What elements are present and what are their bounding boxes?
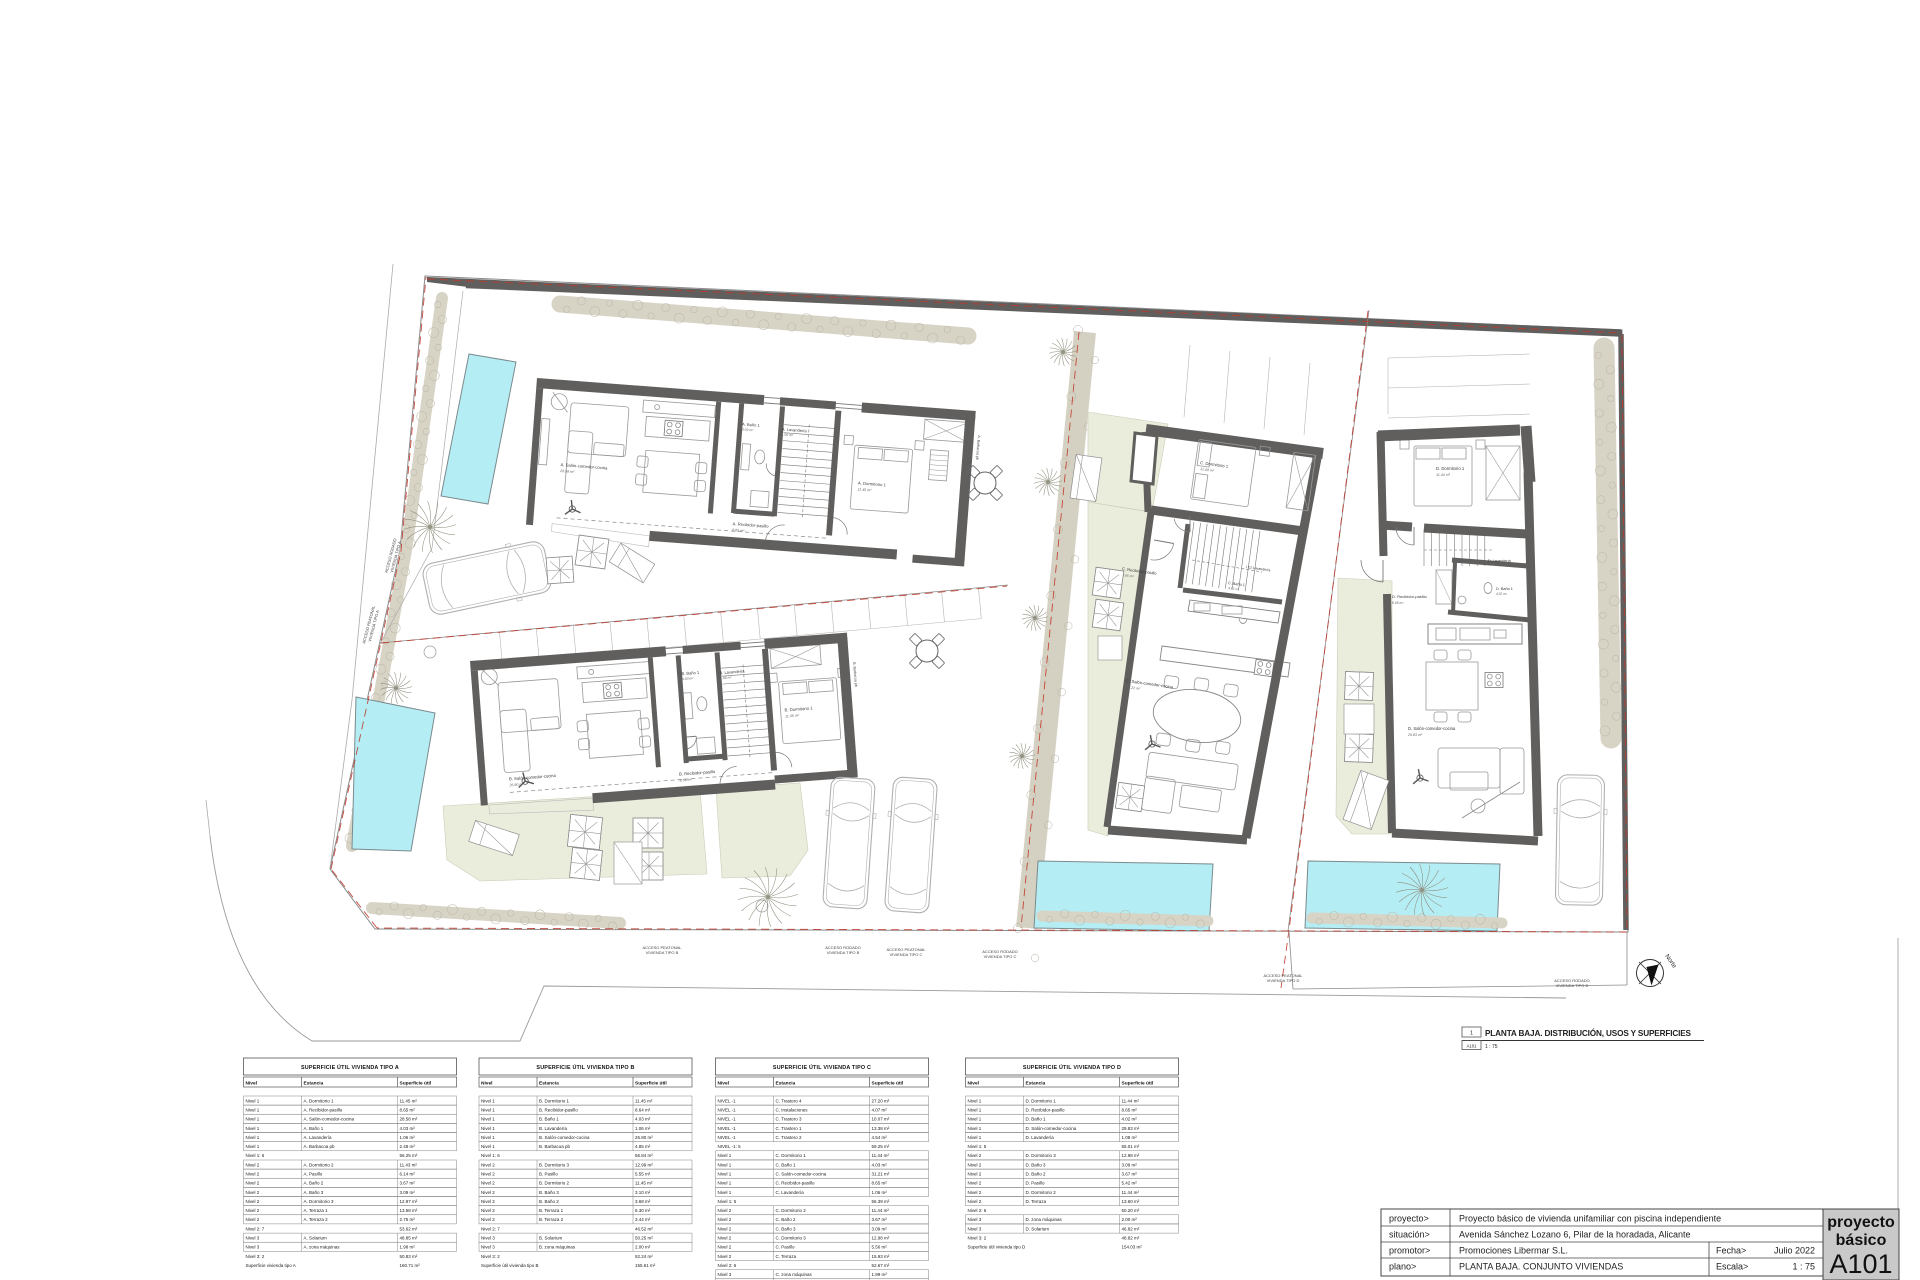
svg-text:C. zona máquinas: C. zona máquinas — [776, 1272, 813, 1277]
svg-text:Nivel 1: Nivel 1 — [718, 1181, 732, 1186]
svg-text:48.82 m²: 48.82 m² — [1122, 1236, 1140, 1241]
svg-text:8.65 m²: 8.65 m² — [400, 1108, 416, 1113]
svg-text:12.99 m²: 12.99 m² — [635, 1162, 653, 1167]
svg-text:2.75 m²: 2.75 m² — [400, 1217, 416, 1222]
svg-text:13.58 m²: 13.58 m² — [400, 1208, 418, 1213]
svg-text:Nivel 3: Nivel 3 — [968, 1226, 982, 1231]
svg-text:C. Baño 3: C. Baño 3 — [776, 1226, 797, 1231]
svg-text:56.84 m²: 56.84 m² — [635, 1153, 653, 1158]
svg-text:Nivel 2: Nivel 2 — [246, 1217, 260, 1222]
svg-text:Nivel: Nivel — [246, 1080, 257, 1086]
svg-text:B. Barbacoa pb: B. Barbacoa pb — [539, 1144, 571, 1149]
svg-text:B. Pasillo: B. Pasillo — [539, 1172, 558, 1177]
svg-text:56.39 m²: 56.39 m² — [872, 1199, 890, 1204]
svg-text:Nivel 2: Nivel 2 — [246, 1190, 260, 1195]
svg-text:Nivel 2: 7: Nivel 2: 7 — [481, 1226, 500, 1231]
svg-text:31.21 m²: 31.21 m² — [872, 1172, 890, 1177]
svg-text:C. Dormitorio 1: C. Dormitorio 1 — [776, 1153, 807, 1158]
svg-text:Nivel 2: Nivel 2 — [718, 1254, 732, 1259]
svg-text:VIVIENDA TIPO D: VIVIENDA TIPO D — [1267, 978, 1300, 983]
svg-text:11.45 m²: 11.45 m² — [400, 1098, 418, 1103]
svg-text:Nivel 2: Nivel 2 — [246, 1162, 260, 1167]
svg-text:1.08 m²: 1.08 m² — [1122, 1135, 1138, 1140]
svg-text:5.42 m²: 5.42 m² — [1122, 1181, 1138, 1186]
svg-text:Nivel 3: 2: Nivel 3: 2 — [968, 1236, 987, 1241]
svg-text:Nivel 1: Nivel 1 — [246, 1117, 260, 1122]
svg-text:4.03 m²: 4.03 m² — [635, 1117, 651, 1122]
svg-text:B. Terraza 2: B. Terraza 2 — [539, 1217, 564, 1222]
svg-text:1 : 75: 1 : 75 — [1485, 1044, 1498, 1050]
svg-text:52.67 m²: 52.67 m² — [872, 1263, 890, 1268]
svg-text:Nivel 3: Nivel 3 — [481, 1236, 495, 1241]
svg-text:A. Recibidor-pasillo: A. Recibidor-pasillo — [304, 1108, 343, 1113]
svg-text:A. Baño 1: A. Baño 1 — [304, 1126, 324, 1131]
svg-text:Nivel 1: Nivel 1 — [481, 1098, 495, 1103]
svg-text:Nivel 2: Nivel 2 — [246, 1181, 260, 1186]
svg-text:B. Baño 3: B. Baño 3 — [539, 1190, 559, 1195]
svg-text:1 : 75: 1 : 75 — [1792, 1262, 1815, 1272]
svg-text:Nivel 2: Nivel 2 — [968, 1162, 982, 1167]
svg-text:B. Dormitorio 1: B. Dormitorio 1 — [539, 1098, 570, 1103]
svg-text:Superficie vivienda tipo A: Superficie vivienda tipo A — [246, 1263, 296, 1268]
svg-text:154.03 m²: 154.03 m² — [1122, 1245, 1143, 1250]
svg-text:1: 1 — [1470, 1031, 1473, 1037]
svg-text:D. Dormitorio 2: D. Dormitorio 2 — [1026, 1190, 1057, 1195]
svg-text:Nivel 2: Nivel 2 — [246, 1199, 260, 1204]
svg-text:Nivel 1: Nivel 1 — [246, 1126, 260, 1131]
svg-text:A. Baño 3: A. Baño 3 — [304, 1190, 324, 1195]
svg-text:D. Terraza: D. Terraza — [1026, 1199, 1047, 1204]
svg-text:Nivel 1: Nivel 1 — [968, 1135, 982, 1140]
svg-text:Superficie útil: Superficie útil — [872, 1080, 904, 1086]
svg-text:12.98 m²: 12.98 m² — [872, 1236, 890, 1241]
svg-text:11.44 m²: 11.44 m² — [1122, 1190, 1140, 1195]
svg-text:11.44 m²: 11.44 m² — [872, 1208, 890, 1213]
svg-text:Nivel 2: 7: Nivel 2: 7 — [246, 1226, 265, 1231]
svg-text:3.44 m²: 3.44 m² — [635, 1217, 651, 1222]
svg-text:Nivel 2: Nivel 2 — [968, 1199, 982, 1204]
svg-text:10.07 m²: 10.07 m² — [872, 1117, 890, 1122]
svg-text:C. Salón-comedor-cocina: C. Salón-comedor-cocina — [776, 1172, 827, 1177]
svg-text:Nivel 1: Nivel 1 — [246, 1135, 260, 1140]
svg-text:Nivel 2: Nivel 2 — [718, 1236, 732, 1241]
svg-text:VIVIENDA TIPO B: VIVIENDA TIPO B — [646, 950, 679, 955]
svg-text:Nivel 1: 5: Nivel 1: 5 — [968, 1144, 987, 1149]
svg-text:Nivel 3: 2: Nivel 3: 2 — [246, 1254, 265, 1259]
svg-text:Nivel 2: Nivel 2 — [718, 1217, 732, 1222]
svg-text:1.98 m²: 1.98 m² — [400, 1245, 416, 1250]
svg-text:C. Instalaciones: C. Instalaciones — [776, 1108, 809, 1113]
svg-text:NIVEL -1: NIVEL -1 — [718, 1108, 737, 1113]
svg-text:Estancia: Estancia — [776, 1080, 796, 1086]
svg-text:Superficie útil: Superficie útil — [1122, 1080, 1154, 1086]
svg-text:Nivel: Nivel — [718, 1080, 729, 1086]
svg-text:Nivel 1: Nivel 1 — [718, 1190, 732, 1195]
svg-text:Promociones Libermar S.L.: Promociones Libermar S.L. — [1459, 1246, 1568, 1256]
svg-text:B. Dormitorio 3: B. Dormitorio 3 — [539, 1162, 570, 1167]
svg-text:Nivel 3: Nivel 3 — [246, 1245, 260, 1250]
svg-text:D. Dormitorio 1: D. Dormitorio 1 — [1436, 466, 1465, 471]
svg-text:13.60 m²: 13.60 m² — [1122, 1199, 1140, 1204]
svg-text:Nivel 1: Nivel 1 — [968, 1098, 982, 1103]
svg-text:15.93 m²: 15.93 m² — [872, 1254, 890, 1259]
svg-text:A. Lavandería: A. Lavandería — [304, 1135, 333, 1140]
svg-text:3.67 m²: 3.67 m² — [872, 1217, 888, 1222]
svg-text:53.62 m²: 53.62 m² — [400, 1226, 418, 1231]
svg-text:Escala>: Escala> — [1716, 1262, 1748, 1272]
svg-text:5.56 m²: 5.56 m² — [872, 1245, 888, 1250]
svg-text:proyecto: proyecto — [1827, 1214, 1895, 1231]
svg-text:46.52 m²: 46.52 m² — [635, 1226, 653, 1231]
svg-text:Julio 2022: Julio 2022 — [1774, 1246, 1815, 1256]
svg-text:Nivel 1: Nivel 1 — [718, 1172, 732, 1177]
svg-text:VIVIENDA TIPO C: VIVIENDA TIPO C — [984, 954, 1017, 959]
svg-text:Avenida Sánchez Lozano 6, Pila: Avenida Sánchez Lozano 6, Pilar de la ho… — [1459, 1230, 1691, 1240]
svg-text:11.44 m²: 11.44 m² — [872, 1153, 890, 1158]
svg-text:Nivel 2: 6: Nivel 2: 6 — [718, 1263, 737, 1268]
svg-text:Nivel 2: Nivel 2 — [481, 1217, 495, 1222]
svg-text:promotor>: promotor> — [1389, 1246, 1430, 1256]
svg-text:NIVEL -1: NIVEL -1 — [718, 1135, 737, 1140]
svg-text:12.97 m²: 12.97 m² — [400, 1199, 418, 1204]
svg-text:59.25 m²: 59.25 m² — [872, 1144, 890, 1149]
svg-text:Nivel 1: Nivel 1 — [968, 1108, 982, 1113]
svg-text:A. Pasillo: A. Pasillo — [304, 1172, 323, 1177]
svg-text:11.45 m²: 11.45 m² — [635, 1181, 653, 1186]
svg-text:50.25 m²: 50.25 m² — [635, 1236, 653, 1241]
svg-text:Nivel 1: Nivel 1 — [968, 1117, 982, 1122]
svg-text:Nivel: Nivel — [968, 1080, 979, 1086]
svg-text:6.14 m²: 6.14 m² — [400, 1172, 416, 1177]
svg-text:básico: básico — [1836, 1232, 1887, 1249]
svg-text:Nivel 3: 2: Nivel 3: 2 — [481, 1254, 500, 1259]
svg-text:28.58 m²: 28.58 m² — [400, 1117, 418, 1122]
svg-text:4.02 m²: 4.02 m² — [1122, 1117, 1138, 1122]
svg-text:VIVIENDA TIPO B: VIVIENDA TIPO B — [827, 950, 860, 955]
svg-text:A101: A101 — [1467, 1044, 1477, 1049]
svg-text:D. Baño 1: D. Baño 1 — [1026, 1117, 1047, 1122]
svg-text:Nivel 2: Nivel 2 — [481, 1190, 495, 1195]
svg-text:Nivel 2: 6: Nivel 2: 6 — [968, 1208, 987, 1213]
svg-text:6.30 m²: 6.30 m² — [635, 1208, 651, 1213]
svg-text:A. Dormitorio 2: A. Dormitorio 2 — [304, 1162, 335, 1167]
svg-text:8.64 m²: 8.64 m² — [635, 1108, 651, 1113]
svg-text:4.02 m²: 4.02 m² — [1496, 592, 1508, 596]
svg-text:Estancia: Estancia — [539, 1080, 559, 1086]
svg-text:A. Baño 2: A. Baño 2 — [304, 1181, 324, 1186]
svg-text:B. Salón-comedor-cocina: B. Salón-comedor-cocina — [539, 1135, 590, 1140]
svg-text:4.85 m²: 4.85 m² — [635, 1144, 651, 1149]
svg-text:3.10 m²: 3.10 m² — [635, 1190, 651, 1195]
svg-text:SUPERFICIE ÚTIL VIVIENDA TIPO: SUPERFICIE ÚTIL VIVIENDA TIPO D — [1023, 1064, 1121, 1071]
svg-text:Nivel 1: Nivel 1 — [481, 1135, 495, 1140]
svg-text:2.48 m²: 2.48 m² — [400, 1144, 416, 1149]
svg-text:11.44 m²: 11.44 m² — [1436, 473, 1451, 477]
svg-text:Nivel 2: Nivel 2 — [481, 1162, 495, 1167]
svg-text:Nivel 1: Nivel 1 — [246, 1108, 260, 1113]
svg-text:11.44 m²: 11.44 m² — [1122, 1098, 1140, 1103]
svg-text:Nivel 2: Nivel 2 — [718, 1245, 732, 1250]
svg-text:C. Trastero 4: C. Trastero 4 — [776, 1098, 803, 1103]
svg-text:3.09 m²: 3.09 m² — [872, 1226, 888, 1231]
svg-text:Nivel 1: 6: Nivel 1: 6 — [481, 1153, 500, 1158]
svg-text:3.67 m²: 3.67 m² — [400, 1181, 416, 1186]
svg-text:C. Dormitorio 3: C. Dormitorio 3 — [776, 1236, 807, 1241]
svg-text:Nivel 2: Nivel 2 — [246, 1208, 260, 1213]
svg-text:C. Lavandería: C. Lavandería — [776, 1190, 805, 1195]
svg-text:Nivel 1: Nivel 1 — [718, 1162, 732, 1167]
svg-text:situación>: situación> — [1389, 1230, 1430, 1240]
svg-text:Nivel 2: Nivel 2 — [481, 1199, 495, 1204]
svg-text:B. Baño 2: B. Baño 2 — [539, 1199, 559, 1204]
svg-text:C. Dormitorio 2: C. Dormitorio 2 — [776, 1208, 807, 1213]
svg-text:8.65 m²: 8.65 m² — [1122, 1108, 1138, 1113]
svg-text:Nivel 2: Nivel 2 — [481, 1208, 495, 1213]
svg-text:8.65 m²: 8.65 m² — [1392, 601, 1404, 605]
svg-text:Nivel 2: Nivel 2 — [968, 1181, 982, 1186]
svg-text:A. zona máquinas: A. zona máquinas — [304, 1245, 341, 1250]
svg-text:C. Trastero 3: C. Trastero 3 — [776, 1117, 803, 1122]
svg-text:A. Dormitorio 3: A. Dormitorio 3 — [304, 1199, 335, 1204]
svg-text:2.00 m²: 2.00 m² — [635, 1245, 651, 1250]
svg-text:48.85 m²: 48.85 m² — [400, 1236, 418, 1241]
svg-text:155.61 m²: 155.61 m² — [635, 1263, 656, 1268]
svg-text:A. Barbacoa pb: A. Barbacoa pb — [304, 1144, 336, 1149]
svg-text:C. Pasillo: C. Pasillo — [776, 1245, 796, 1250]
svg-text:Nivel 1: Nivel 1 — [246, 1098, 260, 1103]
svg-text:NIVEL -1: NIVEL -1 — [718, 1098, 737, 1103]
svg-text:D. Dormitorio 3: D. Dormitorio 3 — [1026, 1153, 1057, 1158]
svg-text:8.65 m²: 8.65 m² — [872, 1181, 888, 1186]
svg-text:D. Recibidor-pasillo: D. Recibidor-pasillo — [1392, 594, 1427, 599]
svg-text:B. Baño 1: B. Baño 1 — [539, 1117, 559, 1122]
svg-text:46.82 m²: 46.82 m² — [1122, 1226, 1140, 1231]
svg-text:C. Baño 1: C. Baño 1 — [776, 1162, 797, 1167]
svg-text:4.03 m²: 4.03 m² — [872, 1162, 888, 1167]
svg-text:C. Baño 2: C. Baño 2 — [776, 1217, 797, 1222]
svg-text:C. Recibidor-pasillo: C. Recibidor-pasillo — [776, 1181, 816, 1186]
svg-text:D. Dormitorio 1: D. Dormitorio 1 — [1026, 1098, 1057, 1103]
svg-text:VIVIENDA TIPO C: VIVIENDA TIPO C — [890, 952, 923, 957]
svg-text:26.80 m²: 26.80 m² — [635, 1135, 653, 1140]
svg-text:50.20 m²: 50.20 m² — [1122, 1208, 1140, 1213]
svg-text:3.09 m²: 3.09 m² — [1122, 1162, 1138, 1167]
svg-text:D. Salón-comedor-cocina: D. Salón-comedor-cocina — [1408, 726, 1456, 731]
svg-text:4.54 m²: 4.54 m² — [872, 1135, 888, 1140]
svg-text:D. Solarium: D. Solarium — [1026, 1226, 1050, 1231]
svg-text:Nivel 1: Nivel 1 — [481, 1108, 495, 1113]
svg-text:D. Recibidor-pasillo: D. Recibidor-pasillo — [1026, 1108, 1066, 1113]
svg-text:PLANTA BAJA. DISTRIBUCIÓN, USO: PLANTA BAJA. DISTRIBUCIÓN, USOS Y SUPERF… — [1485, 1027, 1692, 1038]
svg-text:1.99 m²: 1.99 m² — [872, 1272, 888, 1277]
svg-text:29.83 m²: 29.83 m² — [1122, 1126, 1140, 1131]
svg-text:SUPERFICIE ÚTIL VIVIENDA TIPO: SUPERFICIE ÚTIL VIVIENDA TIPO B — [536, 1064, 634, 1071]
svg-text:11.45 m²: 11.45 m² — [635, 1098, 653, 1103]
svg-text:5.55 m²: 5.55 m² — [635, 1172, 651, 1177]
svg-text:A. Solarium: A. Solarium — [304, 1236, 328, 1241]
svg-text:B. Solarium: B. Solarium — [539, 1236, 563, 1241]
svg-text:56.25 m²: 56.25 m² — [400, 1153, 418, 1158]
svg-text:Proyecto básico de vivienda un: Proyecto básico de vivienda unifamiliar … — [1459, 1214, 1721, 1224]
svg-text:SUPERFICIE ÚTIL VIVIENDA TIPO: SUPERFICIE ÚTIL VIVIENDA TIPO C — [773, 1064, 871, 1071]
svg-text:29.83 m²: 29.83 m² — [1407, 733, 1423, 737]
svg-text:1.06 m²: 1.06 m² — [400, 1135, 416, 1140]
svg-text:B. Terraza 1: B. Terraza 1 — [539, 1208, 564, 1213]
svg-text:3.09 m²: 3.09 m² — [400, 1190, 416, 1195]
svg-text:C. Trastero 2: C. Trastero 2 — [776, 1135, 803, 1140]
svg-text:4.07 m²: 4.07 m² — [872, 1108, 888, 1113]
svg-text:A101: A101 — [1829, 1249, 1892, 1279]
svg-text:52.24 m²: 52.24 m² — [635, 1254, 653, 1259]
svg-text:Superficie útil: Superficie útil — [400, 1080, 432, 1086]
svg-text:Nivel 2: Nivel 2 — [246, 1172, 260, 1177]
svg-text:Nivel 1: Nivel 1 — [246, 1144, 260, 1149]
svg-text:Nivel 1: Nivel 1 — [718, 1153, 732, 1158]
svg-text:A. Terraza 1: A. Terraza 1 — [304, 1208, 329, 1213]
svg-text:Estancia: Estancia — [304, 1080, 324, 1086]
svg-text:D. Lavandería: D. Lavandería — [1026, 1135, 1055, 1140]
svg-text:Nivel 3: Nivel 3 — [481, 1245, 495, 1250]
svg-text:Nivel 1: Nivel 1 — [481, 1126, 495, 1131]
svg-text:D. Baño 1: D. Baño 1 — [1496, 587, 1513, 591]
svg-text:Superficie útil: Superficie útil — [635, 1080, 667, 1086]
svg-text:D. zona máquinas: D. zona máquinas — [1026, 1217, 1063, 1222]
svg-text:Fecha>: Fecha> — [1716, 1246, 1746, 1256]
svg-text:D. Lavandería: D. Lavandería — [1488, 559, 1511, 563]
svg-text:Nivel 2: Nivel 2 — [481, 1181, 495, 1186]
svg-text:13.38 m²: 13.38 m² — [872, 1126, 890, 1131]
svg-text:Nivel 1: 5: Nivel 1: 5 — [718, 1199, 737, 1204]
svg-text:160.71 m²: 160.71 m² — [400, 1263, 421, 1268]
svg-text:NIVEL -1: NIVEL -1 — [718, 1126, 737, 1131]
svg-text:SUPERFICIE ÚTIL VIVIENDA TIPO: SUPERFICIE ÚTIL VIVIENDA TIPO A — [301, 1064, 399, 1071]
svg-text:B. Recibidor-pasillo: B. Recibidor-pasillo — [539, 1108, 578, 1113]
svg-text:27.20 m²: 27.20 m² — [872, 1098, 890, 1103]
svg-text:Nivel 2: Nivel 2 — [968, 1190, 982, 1195]
svg-text:Nivel 1: Nivel 1 — [481, 1117, 495, 1122]
svg-text:Nivel 2: Nivel 2 — [718, 1226, 732, 1231]
svg-text:Nivel 1: 6: Nivel 1: 6 — [246, 1153, 265, 1158]
svg-text:Superficie útil vivienda tipo: Superficie útil vivienda tipo D — [968, 1245, 1027, 1250]
svg-text:NIVEL -1: NIVEL -1 — [718, 1117, 737, 1122]
svg-text:Nivel 3: Nivel 3 — [718, 1272, 732, 1277]
svg-text:A. Salón-comedor-cocina: A. Salón-comedor-cocina — [304, 1117, 355, 1122]
svg-text:A. Dormitorio 1: A. Dormitorio 1 — [304, 1098, 335, 1103]
svg-text:D. Baño 2: D. Baño 2 — [1026, 1172, 1047, 1177]
svg-text:Nivel 2: Nivel 2 — [481, 1172, 495, 1177]
svg-text:proyecto>: proyecto> — [1389, 1214, 1429, 1224]
svg-text:C. Terraza: C. Terraza — [776, 1254, 797, 1259]
svg-text:B. Lavandería: B. Lavandería — [539, 1126, 568, 1131]
svg-text:Nivel 1: Nivel 1 — [968, 1126, 982, 1131]
svg-text:B. zona máquinas: B. zona máquinas — [539, 1245, 576, 1250]
svg-text:3.67 m²: 3.67 m² — [1122, 1172, 1138, 1177]
svg-text:12.98 m²: 12.98 m² — [1122, 1153, 1140, 1158]
svg-text:2.00 m²: 2.00 m² — [1122, 1217, 1138, 1222]
svg-text:C. Trastero 1: C. Trastero 1 — [776, 1126, 803, 1131]
svg-text:55.01 m²: 55.01 m² — [1122, 1144, 1140, 1149]
svg-text:50.83 m²: 50.83 m² — [400, 1254, 418, 1259]
svg-text:VIVIENDA TIPO D: VIVIENDA TIPO D — [1556, 983, 1589, 988]
svg-text:Superficie útil vivienda tipo: Superficie útil vivienda tipo B — [481, 1263, 539, 1268]
svg-text:NIVEL -1: 5: NIVEL -1: 5 — [718, 1144, 742, 1149]
svg-text:D. Salón-comedor-cocina: D. Salón-comedor-cocina — [1026, 1126, 1077, 1131]
svg-text:B. Dormitorio 2: B. Dormitorio 2 — [539, 1181, 570, 1186]
svg-text:3.68 m²: 3.68 m² — [635, 1199, 651, 1204]
svg-text:4.03 m²: 4.03 m² — [400, 1126, 416, 1131]
svg-text:Nivel 2: Nivel 2 — [718, 1208, 732, 1213]
svg-text:plano>: plano> — [1389, 1262, 1416, 1272]
svg-text:D. Baño 3: D. Baño 3 — [1026, 1162, 1047, 1167]
svg-text:Nivel 2: Nivel 2 — [968, 1172, 982, 1177]
svg-text:11.43 m²: 11.43 m² — [400, 1162, 418, 1167]
svg-text:Nivel 1: Nivel 1 — [481, 1144, 495, 1149]
svg-text:1.06 m²: 1.06 m² — [872, 1190, 888, 1195]
svg-text:PLANTA BAJA. CONJUNTO VIVIENDA: PLANTA BAJA. CONJUNTO VIVIENDAS — [1459, 1262, 1623, 1272]
svg-text:1.06 m²: 1.06 m² — [635, 1126, 651, 1131]
svg-text:Nivel 3: Nivel 3 — [246, 1236, 260, 1241]
svg-text:Nivel 2: Nivel 2 — [968, 1153, 982, 1158]
svg-text:D. Pasillo: D. Pasillo — [1026, 1181, 1046, 1186]
svg-text:Nivel 3: Nivel 3 — [968, 1217, 982, 1222]
svg-text:Nivel: Nivel — [481, 1080, 492, 1086]
svg-text:A. Terraza 2: A. Terraza 2 — [304, 1217, 329, 1222]
svg-text:Estancia: Estancia — [1026, 1080, 1046, 1086]
